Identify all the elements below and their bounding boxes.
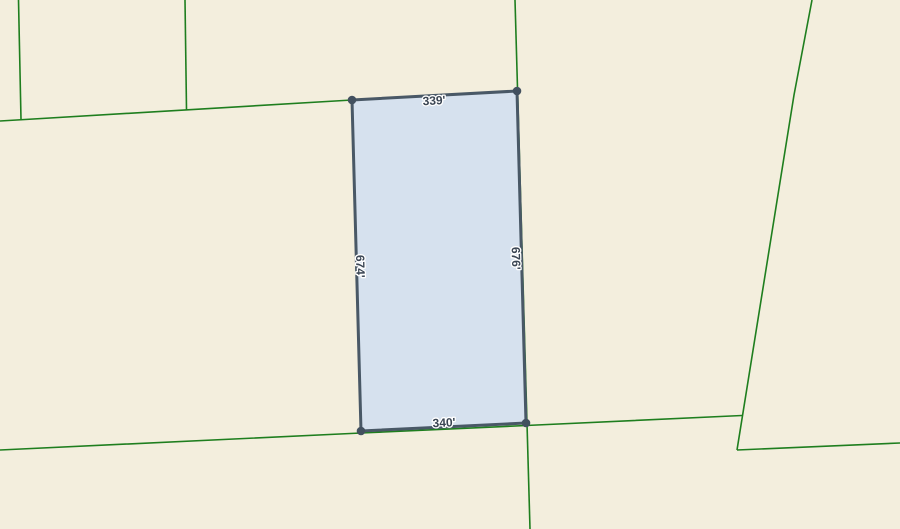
svg-text:676': 676' bbox=[509, 247, 524, 270]
svg-text:674': 674' bbox=[353, 255, 368, 278]
svg-text:339': 339' bbox=[422, 93, 446, 108]
svg-text:340': 340' bbox=[432, 415, 456, 430]
